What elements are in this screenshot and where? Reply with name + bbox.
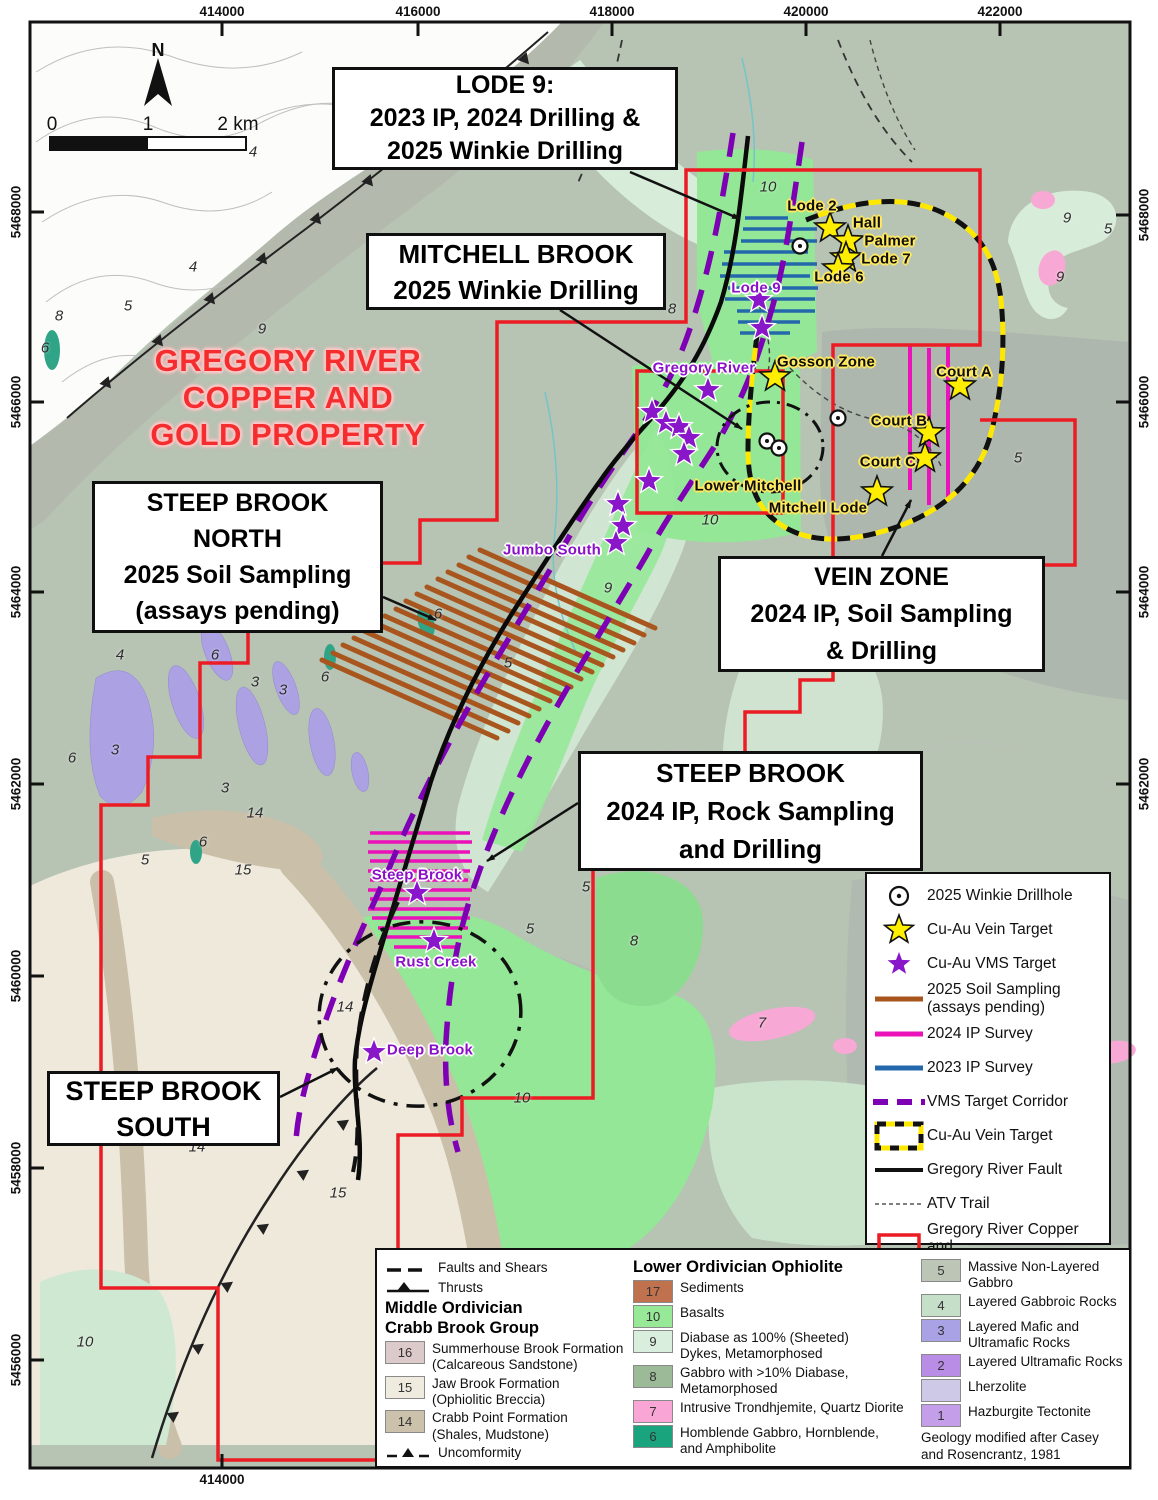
geology-unit: 3Layered Mafic andUltramafic Rocks: [921, 1319, 1123, 1352]
unit-number: 14: [247, 805, 264, 822]
unit-number: 5: [526, 921, 534, 938]
legend-label-line: 2025 Soil Sampling: [927, 981, 1061, 999]
legend-label-line: ATV Trail: [927, 1195, 990, 1213]
unit-label-line: Gabbro: [968, 1275, 1099, 1291]
unit-swatch: 15: [385, 1376, 425, 1399]
unit-label: Sediments: [680, 1280, 744, 1296]
unit-label-line: (Shales, Mudstone): [432, 1427, 568, 1443]
unit-label-line: (Calcareous Sandstone): [432, 1357, 623, 1373]
geology-legend-col2: Lower Ordivician Ophiolite17Sediments10B…: [633, 1257, 915, 1462]
callout-line: STEEP BROOK: [95, 485, 380, 521]
callout-mitchell-brook: MITCHELL BROOK 2025 Winkie Drilling: [366, 233, 666, 310]
unit-swatch: 9: [633, 1330, 673, 1353]
coord-left: 5468000: [9, 186, 24, 239]
unit-number: 14: [337, 999, 354, 1016]
unit-label: Layered Mafic andUltramafic Rocks: [968, 1319, 1079, 1352]
unit-number: 9: [1063, 210, 1071, 227]
geology-credit: Geology modified after Caseyand Rosencra…: [921, 1430, 1123, 1464]
unit-label: Layered Ultramafic Rocks: [968, 1354, 1123, 1370]
scale-tick-1: 1: [143, 114, 154, 136]
callout-line: 2025 Soil Sampling: [95, 557, 380, 593]
coord-top: 420000: [783, 4, 828, 19]
legend-label-line: Cu-Au Vein Target: [927, 921, 1053, 939]
unit-label-line: and Amphibolite: [680, 1441, 879, 1457]
vein-star-icon: [871, 913, 927, 947]
unit-label-line: Metamorphosed: [680, 1381, 848, 1397]
geology-unit: 10Basalts: [633, 1305, 915, 1328]
map-label: Steep Brook: [372, 867, 463, 884]
legend-line-symbol: [385, 1259, 431, 1277]
unit-label: Lherzolite: [968, 1379, 1027, 1395]
unconformity-item: Uncomformity: [385, 1445, 627, 1463]
faults-shears-icon: [385, 1259, 431, 1277]
legend-symbol: [871, 1085, 927, 1119]
coord-left: 5462000: [9, 758, 24, 811]
geology-unit: 15Jaw Brook Formation(Ophiolitic Breccia…: [385, 1376, 627, 1409]
crabb-group-title: Middle OrdivicianCrabb Brook Group: [385, 1299, 627, 1339]
unit-label-line: Layered Gabbroic Rocks: [968, 1294, 1117, 1310]
unit-number: 3: [251, 674, 259, 691]
unit-number: 5: [504, 655, 512, 672]
unit-number: 6: [68, 750, 76, 767]
legend-item: Cu-Au Vein Target: [871, 1119, 1105, 1153]
geology-unit: 9Diabase as 100% (Sheeted)Dykes, Metamor…: [633, 1330, 915, 1363]
geology-legend: Faults and ShearsThrustsMiddle Ordivicia…: [375, 1248, 1131, 1468]
unit-number: 15: [330, 1185, 347, 1202]
scale-tick-2: 2 km: [217, 114, 258, 136]
coord-bottom: 414000: [199, 1472, 244, 1487]
unit-number: 15: [235, 862, 252, 879]
unit-number: 8: [630, 933, 638, 950]
coord-right: 5466000: [1137, 376, 1152, 429]
unit-label-line: Layered Ultramafic Rocks: [968, 1354, 1123, 1370]
legend-label-line: VMS Target Corridor: [927, 1093, 1068, 1111]
map-page: 4140004160004180004200004220004140005468…: [0, 0, 1158, 1500]
callout-line: NORTH: [95, 521, 380, 557]
geology-legend-col3: 5Massive Non-LayeredGabbro4Layered Gabbr…: [921, 1257, 1123, 1462]
unit-label: Layered Gabbroic Rocks: [968, 1294, 1117, 1310]
legend-item: 2025 Soil Sampling(assays pending): [871, 981, 1105, 1017]
legend-label: Cu-Au Vein Target: [927, 1127, 1053, 1145]
geology-unit: 7Intrusive Trondhjemite, Quartz Diorite: [633, 1400, 915, 1423]
legend-symbol: [871, 1017, 927, 1051]
map-label: Deep Brook: [387, 1042, 473, 1059]
legend-label: Cu-Au VMS Target: [927, 955, 1056, 973]
unit-number: 5: [1014, 450, 1022, 467]
legend-label: 2023 IP Survey: [927, 1059, 1033, 1077]
unit-label-line: Intrusive Trondhjemite, Quartz Diorite: [680, 1400, 904, 1416]
callout-line: 2024 IP, Soil Sampling: [721, 596, 1042, 633]
scale-bar: [50, 137, 246, 150]
ip2024-icon: [871, 1017, 927, 1051]
map-label: Jumbo South: [503, 542, 601, 559]
unit-label-line: Basalts: [680, 1305, 724, 1321]
coord-top: 418000: [589, 4, 634, 19]
legend-label: 2024 IP Survey: [927, 1025, 1033, 1043]
map-label: Lower Mitchell: [695, 478, 802, 495]
legend-label-line: Gregory River Fault: [927, 1161, 1062, 1179]
unit-number: 3: [221, 780, 229, 797]
legend-item: VMS Target Corridor: [871, 1085, 1105, 1119]
unit-swatch: 6: [633, 1425, 673, 1448]
callout-line: LODE 9:: [335, 69, 675, 102]
unconformity-symbol: [385, 1445, 431, 1463]
callout-steep-brook: STEEP BROOK 2024 IP, Rock Sampling and D…: [578, 751, 923, 871]
legend-line-symbol: [385, 1279, 431, 1297]
map-label: Lode 7: [861, 251, 911, 268]
geology-legend-col1: Faults and ShearsThrustsMiddle Ordivicia…: [385, 1257, 627, 1462]
unit-number: 10: [760, 179, 777, 196]
unit-swatch: 14: [385, 1410, 425, 1433]
map-label: Lode 2: [787, 198, 837, 215]
legend-symbol: [871, 982, 927, 1016]
geology-unit: Lherzolite: [921, 1379, 1123, 1402]
callout-line: VEIN ZONE: [721, 559, 1042, 596]
map-label: Gosson Zone: [777, 354, 875, 371]
map-label: Hall: [853, 215, 881, 232]
unit-number: 6: [41, 340, 49, 357]
unit-label-line: Ultramafic Rocks: [968, 1335, 1079, 1351]
legend-item: 2024 IP Survey: [871, 1017, 1105, 1051]
callout-line: (assays pending): [95, 593, 380, 629]
legend-symbol: [871, 947, 927, 981]
legend-line-item: Faults and Shears: [385, 1259, 627, 1277]
unit-label: Summerhouse Brook Formation(Calcareous S…: [432, 1341, 623, 1374]
unit-number: 5: [141, 852, 149, 869]
winkie-icon: [871, 879, 927, 913]
unit-number: 4: [189, 259, 197, 276]
atv-icon: [871, 1187, 927, 1221]
callout-line: STEEP BROOK: [50, 1073, 277, 1109]
unit-number: 10: [514, 1090, 531, 1107]
crabb-title-line: Middle Ordivician: [385, 1299, 627, 1319]
ophiolite-title: Lower Ordivician Ophiolite: [633, 1258, 915, 1278]
legend-label-line: 2024 IP Survey: [927, 1025, 1033, 1043]
unit-label-line: Layered Mafic and: [968, 1319, 1079, 1335]
geology-unit: 6Homblende Gabbro, Hornblende,and Amphib…: [633, 1425, 915, 1458]
legend-label: Cu-Au Vein Target: [927, 921, 1053, 939]
unit-swatch: 2: [921, 1354, 961, 1377]
unit-swatch: 8: [633, 1365, 673, 1388]
geology-unit: 14Crabb Point Formation(Shales, Mudstone…: [385, 1410, 627, 1443]
property-title: GREGORY RIVER COPPER AND GOLD PROPERTY: [118, 342, 458, 453]
coord-left: 5466000: [9, 376, 24, 429]
unit-label-line: Sediments: [680, 1280, 744, 1296]
property-title-line: COPPER AND: [118, 379, 458, 416]
callout-line: MITCHELL BROOK: [369, 236, 663, 272]
unit-swatch: 7: [633, 1400, 673, 1423]
callout-lode9: LODE 9: 2023 IP, 2024 Drilling & 2025 Wi…: [332, 67, 678, 170]
coord-left: 5458000: [9, 1142, 24, 1195]
unit-number: 7: [758, 1015, 766, 1032]
coord-top: 422000: [977, 4, 1022, 19]
unit-number: 10: [702, 512, 719, 529]
callout-line: STEEP BROOK: [581, 754, 920, 792]
corridor-icon: [871, 1085, 927, 1119]
callout-line: SOUTH: [50, 1109, 277, 1145]
unit-number: 4: [249, 144, 257, 161]
legend-line-label: Faults and Shears: [438, 1260, 548, 1276]
unit-number: 8: [55, 308, 63, 325]
north-label: N: [152, 40, 165, 61]
unit-number: 3: [279, 682, 287, 699]
geology-unit: 16Summerhouse Brook Formation(Calcareous…: [385, 1341, 627, 1374]
legend-symbol: [871, 1119, 927, 1153]
unit-number: 6: [321, 669, 329, 686]
unit-number: 6: [211, 647, 219, 664]
geology-unit: 8Gabbro with >10% Diabase,Metamorphosed: [633, 1365, 915, 1398]
coord-left: 5460000: [9, 950, 24, 1003]
callout-line: & Drilling: [721, 633, 1042, 670]
callout-line: and Drilling: [581, 830, 920, 868]
geology-unit: 5Massive Non-LayeredGabbro: [921, 1259, 1123, 1292]
unit-swatch: [921, 1379, 961, 1402]
crabb-title-line: Crabb Brook Group: [385, 1319, 627, 1339]
unit-label-line: Hazburgite Tectonite: [968, 1404, 1091, 1420]
map-label: Court A: [936, 364, 992, 381]
property-title-line: GOLD PROPERTY: [118, 416, 458, 453]
legend-item: Cu-Au Vein Target: [871, 913, 1105, 947]
coord-top: 416000: [395, 4, 440, 19]
unit-label: Diabase as 100% (Sheeted)Dykes, Metamorp…: [680, 1330, 849, 1363]
map-label: Court C: [860, 454, 916, 471]
callout-vein-zone: VEIN ZONE 2024 IP, Soil Sampling & Drill…: [718, 556, 1045, 672]
map-label: Court B: [871, 413, 927, 430]
geology-unit: 4Layered Gabbroic Rocks: [921, 1294, 1123, 1317]
unit-label: Homblende Gabbro, Hornblende,and Amphibo…: [680, 1425, 879, 1458]
unit-number: 5: [1104, 221, 1112, 238]
legend-symbol: [871, 913, 927, 947]
unit-label-line: Jaw Brook Formation: [432, 1376, 560, 1392]
legend-label: 2025 Soil Sampling(assays pending): [927, 981, 1061, 1017]
unit-swatch: 3: [921, 1319, 961, 1342]
unit-label-line: Lherzolite: [968, 1379, 1027, 1395]
legend-item: ATV Trail: [871, 1187, 1105, 1221]
map-label: Gregory River: [653, 360, 756, 377]
legend-label-line: (assays pending): [927, 999, 1061, 1017]
legend-item: Gregory River Fault: [871, 1153, 1105, 1187]
legend-label-line: Cu-Au VMS Target: [927, 955, 1056, 973]
unit-swatch: 4: [921, 1294, 961, 1317]
map-label: Lode 6: [814, 269, 864, 286]
ip2023-icon: [871, 1051, 927, 1085]
legend-label-line: 2023 IP Survey: [927, 1059, 1033, 1077]
legend-line-label: Thrusts: [438, 1280, 483, 1296]
unit-label-line: Massive Non-Layered: [968, 1259, 1099, 1275]
unit-swatch: 1: [921, 1404, 961, 1427]
callout-line: 2024 IP, Rock Sampling: [581, 792, 920, 830]
legend-label: 2025 Winkie Drillhole: [927, 887, 1073, 905]
unit-label-line: Homblende Gabbro, Hornblende,: [680, 1425, 879, 1441]
vms-star-icon: [871, 947, 927, 981]
legend-item: Cu-Au VMS Target: [871, 947, 1105, 981]
unit-swatch: 5: [921, 1259, 961, 1282]
unit-swatch: 10: [633, 1305, 673, 1328]
coord-right: 5468000: [1137, 189, 1152, 242]
legend-label: VMS Target Corridor: [927, 1093, 1068, 1111]
unit-label-line: (Ophiolitic Breccia): [432, 1392, 560, 1408]
legend-symbol: [871, 1153, 927, 1187]
unit-label: Basalts: [680, 1305, 724, 1321]
geology-credit-line: and Rosencrantz, 1981: [921, 1447, 1123, 1464]
coord-top: 414000: [199, 4, 244, 19]
unit-label: Jaw Brook Formation(Ophiolitic Breccia): [432, 1376, 560, 1409]
legend-symbol: [871, 1051, 927, 1085]
unit-label-line: Summerhouse Brook Formation: [432, 1341, 623, 1357]
unit-label: Crabb Point Formation(Shales, Mudstone): [432, 1410, 568, 1443]
unit-label: Intrusive Trondhjemite, Quartz Diorite: [680, 1400, 904, 1416]
legend-item: 2025 Winkie Drillhole: [871, 879, 1105, 913]
callout-line: 2025 Winkie Drilling: [369, 272, 663, 308]
thrusts-icon: [385, 1279, 431, 1297]
map-label: Mitchell Lode: [769, 500, 867, 517]
callout-steep-brook-south: STEEP BROOK SOUTH: [47, 1071, 280, 1146]
coord-left: 5464000: [9, 566, 24, 619]
map-label: Palmer: [864, 233, 915, 250]
map-label: Lode 9: [731, 280, 781, 297]
unit-label-line: Crabb Point Formation: [432, 1410, 568, 1426]
unit-number: 3: [111, 742, 119, 759]
scale-tick-0: 0: [47, 114, 58, 136]
geology-unit: 2Layered Ultramafic Rocks: [921, 1354, 1123, 1377]
unit-number: 5: [582, 879, 590, 896]
unit-number: 4: [116, 647, 124, 664]
unit-number: 9: [258, 321, 266, 338]
legend-label: Gregory River Fault: [927, 1161, 1062, 1179]
unit-label: Hazburgite Tectonite: [968, 1404, 1091, 1420]
unit-number: 8: [668, 301, 676, 318]
unconformity-label: Uncomformity: [438, 1445, 521, 1461]
legend-label-line: 2025 Winkie Drillhole: [927, 887, 1073, 905]
unit-swatch: 16: [385, 1341, 425, 1364]
unit-number: 5: [124, 298, 132, 315]
legend-item: 2023 IP Survey: [871, 1051, 1105, 1085]
unconformity-icon: [385, 1445, 431, 1463]
unit-swatch: 17: [633, 1280, 673, 1303]
unit-number: 6: [434, 606, 442, 623]
unit-number: 10: [77, 1334, 94, 1351]
geology-unit: 17Sediments: [633, 1280, 915, 1303]
geology-credit-line: Geology modified after Casey: [921, 1430, 1123, 1447]
property-title-line: GREGORY RIVER: [118, 342, 458, 379]
legend-line-item: Thrusts: [385, 1279, 627, 1297]
legend-label-line: Cu-Au Vein Target: [927, 1127, 1053, 1145]
map-label: Rust Creek: [395, 954, 476, 971]
geology-unit: 1Hazburgite Tectonite: [921, 1404, 1123, 1427]
callout-line: 2023 IP, 2024 Drilling &: [335, 102, 675, 135]
symbol-legend: 2025 Winkie DrillholeCu-Au Vein TargetCu…: [865, 872, 1111, 1245]
unit-label-line: Diabase as 100% (Sheeted): [680, 1330, 849, 1346]
vein-box-icon: [871, 1119, 927, 1153]
fault-icon: [871, 1153, 927, 1187]
coord-right: 5462000: [1137, 758, 1152, 811]
unit-label-line: Gabbro with >10% Diabase,: [680, 1365, 848, 1381]
coord-right: 5464000: [1137, 566, 1152, 619]
callout-steep-brook-north: STEEP BROOK NORTH 2025 Soil Sampling (as…: [92, 481, 383, 633]
unit-label-line: Dykes, Metamorphosed: [680, 1346, 849, 1362]
callout-line: 2025 Winkie Drilling: [335, 135, 675, 168]
legend-symbol: [871, 1187, 927, 1221]
unit-number: 9: [604, 580, 612, 597]
unit-label: Gabbro with >10% Diabase,Metamorphosed: [680, 1365, 848, 1398]
soil-line-icon: [871, 982, 927, 1016]
legend-label: ATV Trail: [927, 1195, 990, 1213]
unit-number: 9: [1056, 269, 1064, 286]
unit-label: Massive Non-LayeredGabbro: [968, 1259, 1099, 1292]
legend-symbol: [871, 879, 927, 913]
unit-number: 6: [199, 834, 207, 851]
coord-left: 5456000: [9, 1334, 24, 1387]
